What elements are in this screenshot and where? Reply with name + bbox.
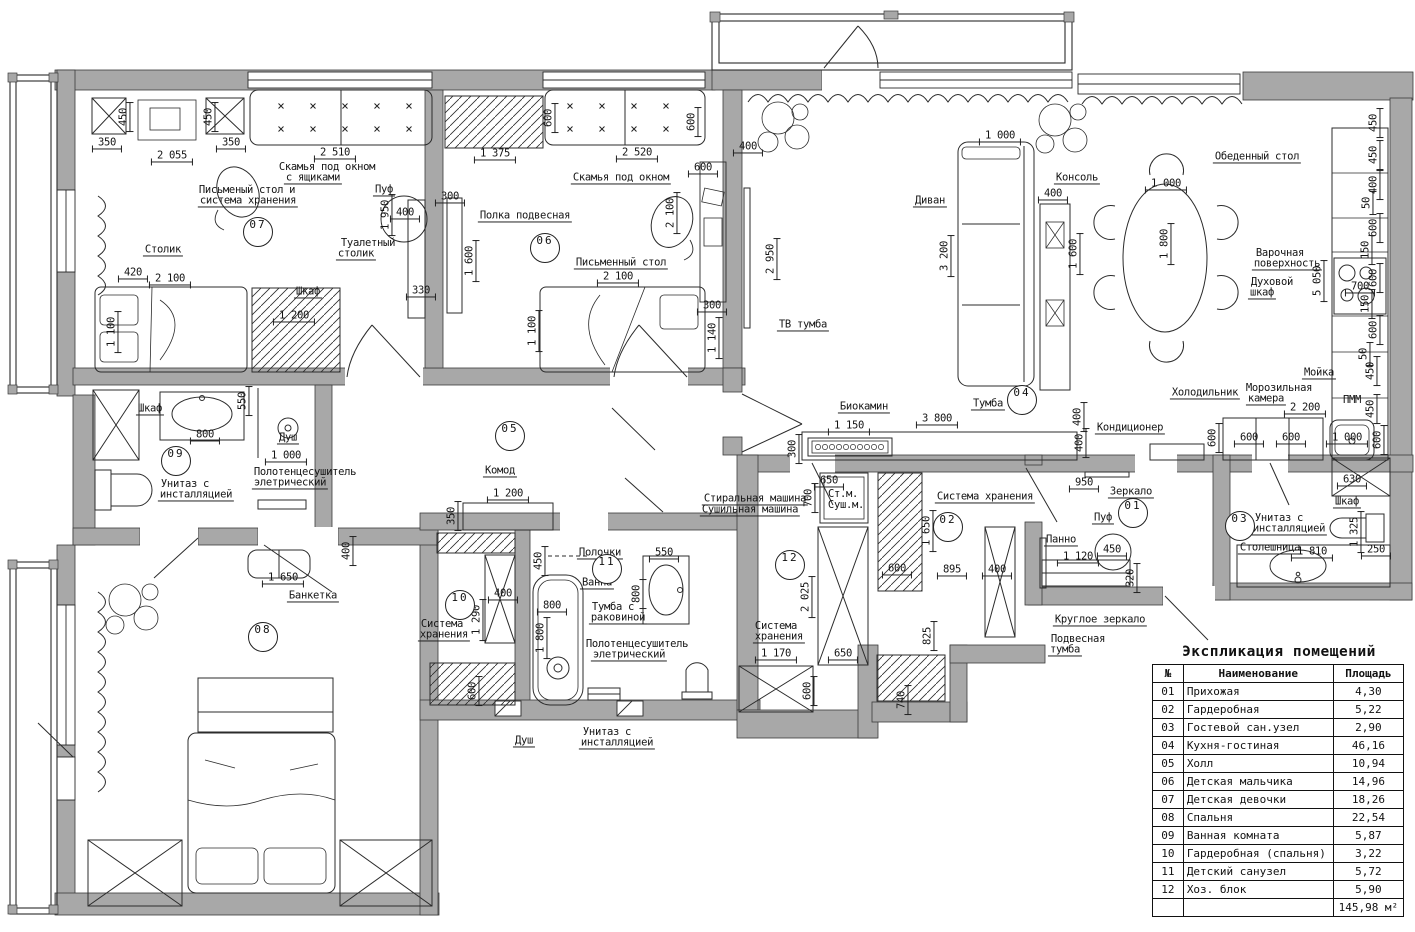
dimension-label: 400 bbox=[1038, 187, 1068, 200]
dimension-label: 1 325 bbox=[1348, 511, 1361, 553]
legend-row: 07Детская девочки18,26 bbox=[1153, 791, 1404, 809]
dimension-label: 320 bbox=[1124, 563, 1137, 593]
dimension-label: 2 100 bbox=[597, 270, 639, 283]
dimension-label: 300 bbox=[435, 190, 465, 203]
legend-col-area: Площадь bbox=[1333, 665, 1403, 683]
dimension-label: 600 bbox=[1206, 423, 1219, 453]
dimension-label: 420 bbox=[118, 266, 148, 279]
legend-row: 01Прихожая4,30 bbox=[1153, 683, 1404, 701]
legend-body: 01Прихожая4,3002Гардеробная5,2203Гостево… bbox=[1153, 683, 1404, 899]
dimension-label: 895 bbox=[937, 563, 967, 576]
room-number-01: 01 bbox=[1118, 498, 1148, 528]
dimension-label: 2 200 bbox=[1284, 401, 1326, 414]
legend-col-no: № bbox=[1153, 665, 1184, 683]
furniture-label: хранения bbox=[753, 630, 805, 643]
furniture-label: Скамья под окном bbox=[571, 171, 671, 184]
furniture-label: Зеркало bbox=[1108, 485, 1154, 498]
dimension-label: 1 100 bbox=[526, 310, 539, 352]
furniture-label: элетрический bbox=[252, 476, 328, 489]
dimension-label: 600 bbox=[1367, 315, 1380, 345]
dimension-label: 450 bbox=[202, 102, 215, 132]
dimension-label: 1 140 bbox=[706, 317, 719, 359]
dimension-label: 600 bbox=[801, 676, 814, 706]
legend-row: 10Гардеробная (спальня)3,22 bbox=[1153, 845, 1404, 863]
furniture-label: ТВ тумба bbox=[777, 318, 829, 331]
dimension-label: 450 bbox=[1364, 356, 1377, 386]
furniture-label: Биокамин bbox=[838, 400, 890, 413]
dimension-label: 600 bbox=[688, 161, 718, 174]
furniture-label: Пуф bbox=[1092, 511, 1114, 524]
furniture-label: Душ bbox=[513, 734, 535, 747]
room-number-12: 12 bbox=[775, 550, 805, 580]
furniture-label: Шкаф bbox=[1333, 495, 1361, 508]
furniture-label: Система хранения bbox=[935, 490, 1035, 503]
furniture-label: Суш.м. bbox=[828, 499, 864, 511]
dimension-label: 600 bbox=[882, 562, 912, 575]
dimension-label: 150 bbox=[1359, 235, 1372, 265]
room-number-11: 11 bbox=[592, 554, 622, 584]
dimension-label: 300 bbox=[786, 434, 799, 464]
furniture-label: поверхность bbox=[1252, 257, 1322, 270]
room-number-08: 08 bbox=[248, 622, 278, 652]
legend-row: 12Хоз. блок5,90 bbox=[1153, 881, 1404, 899]
dimension-label: 1 200 bbox=[273, 309, 315, 322]
furniture-label: камера bbox=[1246, 392, 1286, 405]
legend-table: № Наименование Площадь 01Прихожая4,3002Г… bbox=[1152, 664, 1404, 917]
dimension-label: 800 bbox=[537, 599, 567, 612]
dimension-label: 400 bbox=[488, 587, 518, 600]
dimension-label: 1 810 bbox=[1291, 545, 1333, 558]
dimension-label: 400 bbox=[1073, 428, 1086, 458]
dimension-label: 2 510 bbox=[314, 146, 356, 159]
legend-row: 08Спальня22,54 bbox=[1153, 809, 1404, 827]
legend-total-row: 145,98 м² bbox=[1153, 899, 1404, 917]
legend-row: 03Гостевой сан.узел2,90 bbox=[1153, 719, 1404, 737]
legend-row: 11Детский санузел5,72 bbox=[1153, 863, 1404, 881]
dimension-label: 1 800 bbox=[1158, 223, 1171, 265]
furniture-label: Шкаф bbox=[294, 285, 322, 298]
room-number-04: 04 bbox=[1007, 385, 1037, 415]
legend-row: 02Гардеробная5,22 bbox=[1153, 701, 1404, 719]
furniture-label: раковиной bbox=[589, 611, 647, 624]
dimension-label: 350 bbox=[92, 136, 122, 149]
furniture-label: Шкаф bbox=[136, 402, 164, 415]
legend-col-name: Наименование bbox=[1183, 665, 1333, 683]
dimension-label: 630 bbox=[1337, 473, 1367, 486]
furniture-label: Холодильник bbox=[1170, 386, 1240, 399]
furniture-label: Мойка bbox=[1302, 366, 1336, 379]
dimension-label: 400 bbox=[733, 140, 763, 153]
dimension-label: 600 bbox=[542, 103, 555, 133]
dimension-label: 600 bbox=[1371, 425, 1384, 455]
dimension-label: 1 000 bbox=[979, 129, 1021, 142]
dimension-label: 2 950 bbox=[764, 238, 777, 280]
dimension-label: 1 100 bbox=[105, 311, 118, 353]
dimension-label: 1 650 bbox=[920, 510, 933, 552]
dimension-label: 650 bbox=[828, 647, 858, 660]
dimension-label: 400 bbox=[390, 206, 420, 219]
dimension-label: 1 000 bbox=[265, 449, 307, 462]
dimension-label: 450 bbox=[1097, 543, 1127, 556]
dimension-label: 2 100 bbox=[664, 192, 677, 234]
dimension-label: 330 bbox=[406, 284, 436, 297]
dimension-label: 450 bbox=[532, 546, 545, 576]
dimension-label: 740 bbox=[895, 685, 908, 715]
dimension-label: 700 bbox=[802, 483, 815, 513]
room-number-07: 07 bbox=[243, 217, 273, 247]
room-number-03: 03 bbox=[1225, 511, 1255, 541]
furniture-label: Пуф bbox=[373, 183, 395, 196]
furniture-label: Консоль bbox=[1054, 171, 1100, 184]
floorplan-canvas: 3502 0553502 5104504501 9504004202 1001 … bbox=[0, 0, 1415, 932]
furniture-label: элетрический bbox=[591, 648, 667, 661]
legend-row: 05Холл10,94 bbox=[1153, 755, 1404, 773]
dimension-label: 950 bbox=[1069, 476, 1099, 489]
furniture-label: Сушильная машина bbox=[700, 503, 800, 516]
dimension-label: 450 bbox=[1364, 394, 1377, 424]
furniture-label: с ящиками bbox=[284, 171, 342, 184]
dimension-label: 600 bbox=[1276, 431, 1306, 444]
dimension-label: 600 bbox=[685, 107, 698, 137]
furniture-label: шкаф bbox=[1248, 286, 1276, 299]
dimension-label: 1 000 bbox=[1326, 431, 1368, 444]
dimension-label: 350 bbox=[445, 501, 458, 531]
dimension-label: 250 bbox=[1361, 543, 1391, 556]
dimension-label: 300 bbox=[697, 299, 727, 312]
furniture-label: Кондиционер bbox=[1095, 421, 1165, 434]
furniture-label: Столик bbox=[143, 243, 183, 256]
dimension-label: 450 bbox=[1367, 140, 1380, 170]
legend-row: 06Детская мальчика14,96 bbox=[1153, 773, 1404, 791]
legend-row: 09Ванная комната5,87 bbox=[1153, 827, 1404, 845]
room-number-02: 02 bbox=[933, 512, 963, 542]
furniture-label: Обеденный стол bbox=[1213, 150, 1301, 163]
furniture-label: Диван bbox=[913, 194, 947, 207]
legend-row: 04Кухня-гостиная46,16 bbox=[1153, 737, 1404, 755]
dimension-label: 1 375 bbox=[474, 147, 516, 160]
furniture-label: Письменный стол bbox=[574, 256, 668, 269]
dimension-label: 1 600 bbox=[463, 240, 476, 282]
dimension-label: 550 bbox=[649, 546, 679, 559]
room-number-05: 05 bbox=[495, 421, 525, 451]
room-number-09: 09 bbox=[161, 446, 191, 476]
furniture-label: Панно bbox=[1044, 533, 1078, 546]
dimension-label: 3 800 bbox=[916, 412, 958, 425]
dimension-label: 600 bbox=[466, 676, 479, 706]
furniture-label: Банкетка bbox=[287, 589, 339, 602]
dimension-label: 825 bbox=[921, 621, 934, 651]
dimension-label: 1 120 bbox=[1057, 550, 1099, 563]
legend-title: Экспликация помещений bbox=[1152, 644, 1406, 660]
dimension-label: 450 bbox=[117, 102, 130, 132]
legend-total: 145,98 м² bbox=[1333, 899, 1403, 917]
dimension-label: 1 600 bbox=[1067, 233, 1080, 275]
dimension-label: 600 bbox=[1234, 431, 1264, 444]
dimension-label: 50 bbox=[1360, 191, 1373, 215]
dimension-label: 1 150 bbox=[828, 419, 870, 432]
dimension-label: 1 170 bbox=[755, 647, 797, 660]
furniture-label: ПММ bbox=[1343, 394, 1361, 406]
furniture-label: Круглое зеркало bbox=[1053, 613, 1147, 626]
legend: Экспликация помещений № Наименование Пло… bbox=[1152, 644, 1406, 917]
dimension-label: 350 bbox=[216, 136, 246, 149]
furniture-label: столик bbox=[336, 247, 376, 260]
dimension-label: 400 bbox=[1071, 402, 1084, 432]
furniture-label: инсталляцией bbox=[579, 736, 655, 749]
furniture-label: тумба bbox=[1048, 643, 1082, 656]
dimension-label: 650 bbox=[814, 474, 844, 487]
dimension-label: 2 055 bbox=[151, 149, 193, 162]
dimension-label: 2 520 bbox=[616, 146, 658, 159]
dimension-label: 1 000 bbox=[1145, 177, 1187, 190]
room-number-06: 06 bbox=[530, 233, 560, 263]
dimension-label: 550 bbox=[236, 386, 249, 416]
furniture-label: система хранения bbox=[198, 194, 298, 207]
dimension-label: 1 650 bbox=[262, 571, 304, 584]
furniture-label: Тумба bbox=[971, 397, 1005, 410]
furniture-label: Душ bbox=[277, 431, 299, 444]
furniture-label: инсталляцией bbox=[1251, 522, 1327, 535]
dimension-label: 1 200 bbox=[487, 487, 529, 500]
dimension-label: 2 025 bbox=[799, 576, 812, 618]
room-number-10: 10 bbox=[445, 590, 475, 620]
dimension-label: 400 bbox=[982, 563, 1012, 576]
dimension-label: 450 bbox=[1367, 108, 1380, 138]
furniture-label: инсталляцией bbox=[158, 488, 234, 501]
dimension-label: 3 200 bbox=[938, 235, 951, 277]
dimension-label: 2 100 bbox=[149, 272, 191, 285]
dimension-label: 1 800 bbox=[534, 617, 547, 659]
furniture-label: хранения bbox=[418, 628, 470, 641]
dimension-label: 400 bbox=[340, 536, 353, 566]
dimension-label: 800 bbox=[190, 428, 220, 441]
furniture-label: Полка подвесная bbox=[478, 209, 572, 222]
furniture-label: Комод bbox=[483, 464, 517, 477]
